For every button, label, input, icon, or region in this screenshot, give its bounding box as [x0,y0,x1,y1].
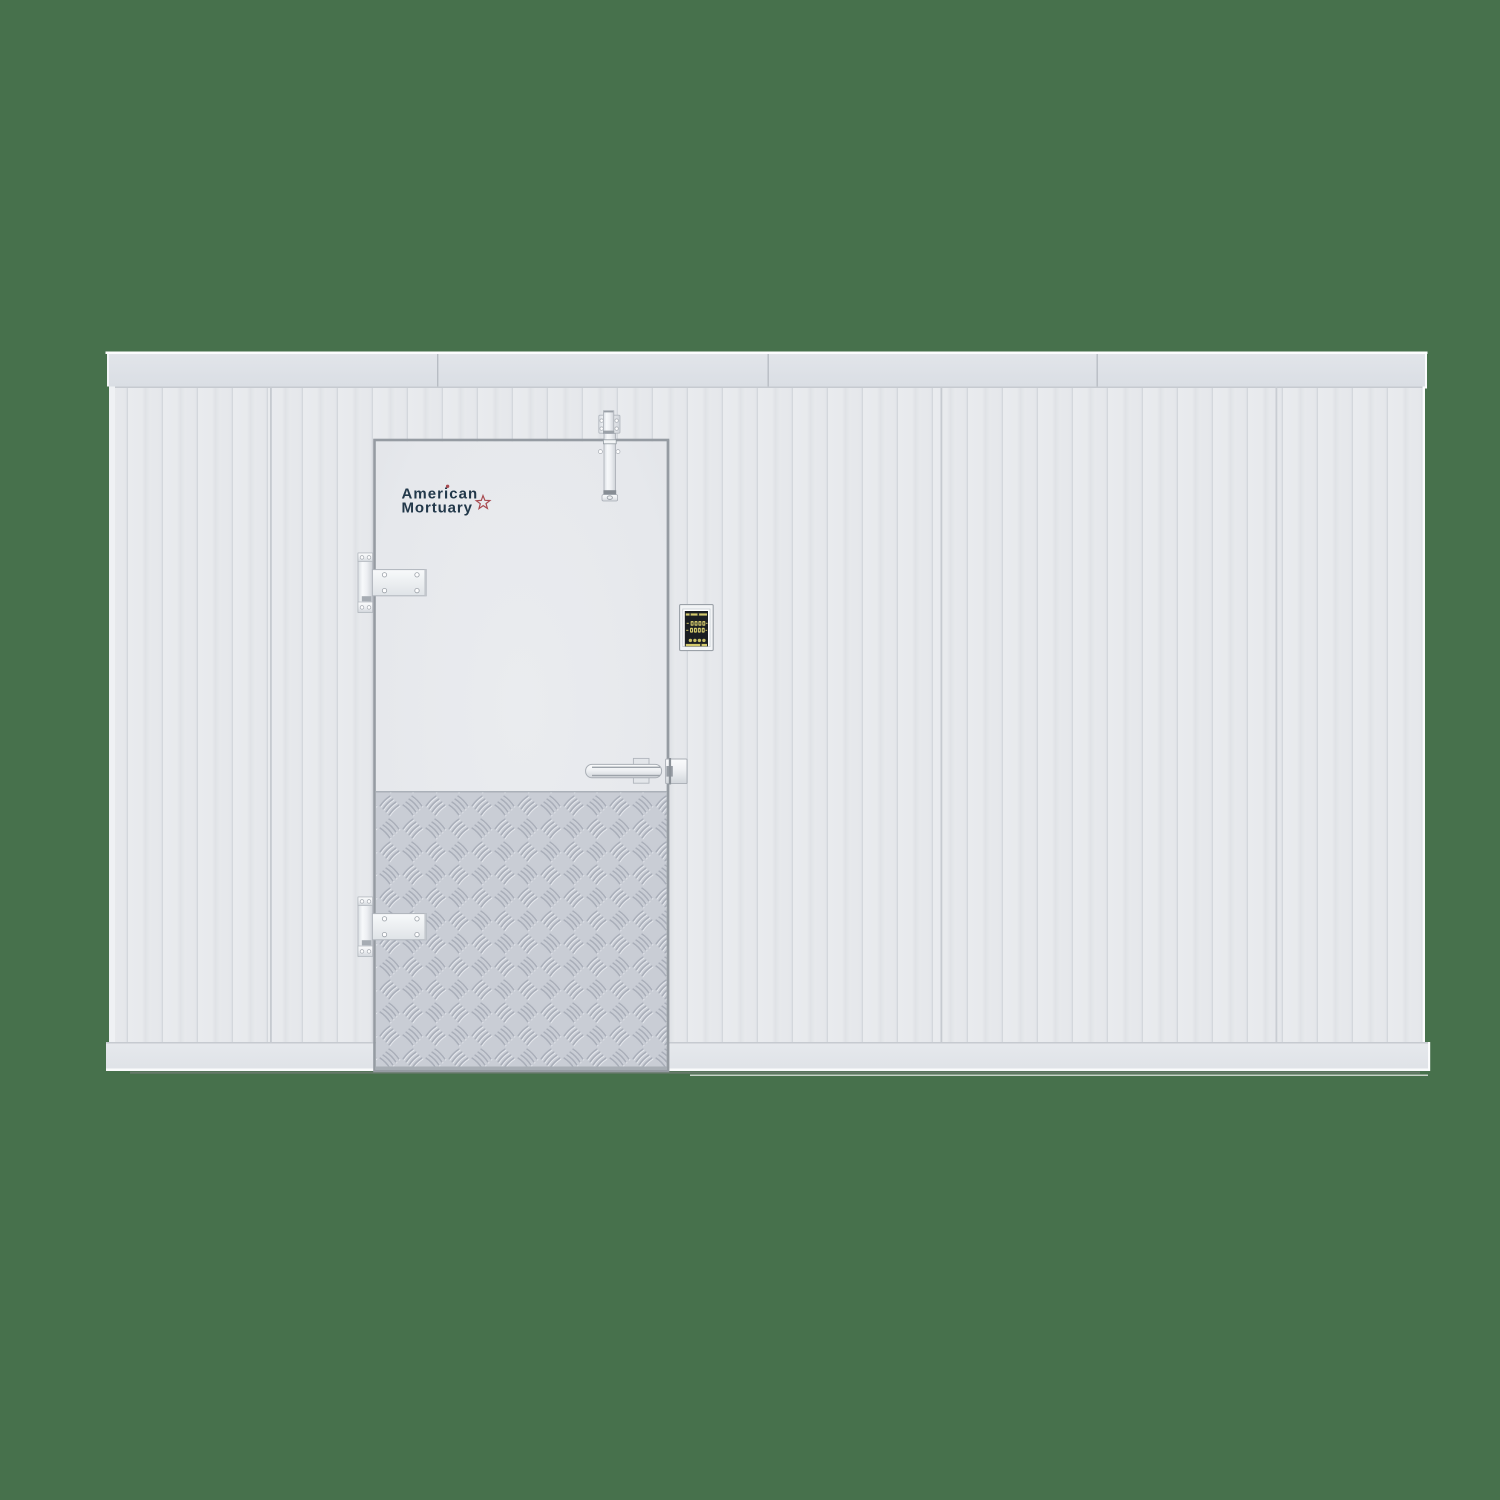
svg-text:Mortuary: Mortuary [402,500,473,517]
